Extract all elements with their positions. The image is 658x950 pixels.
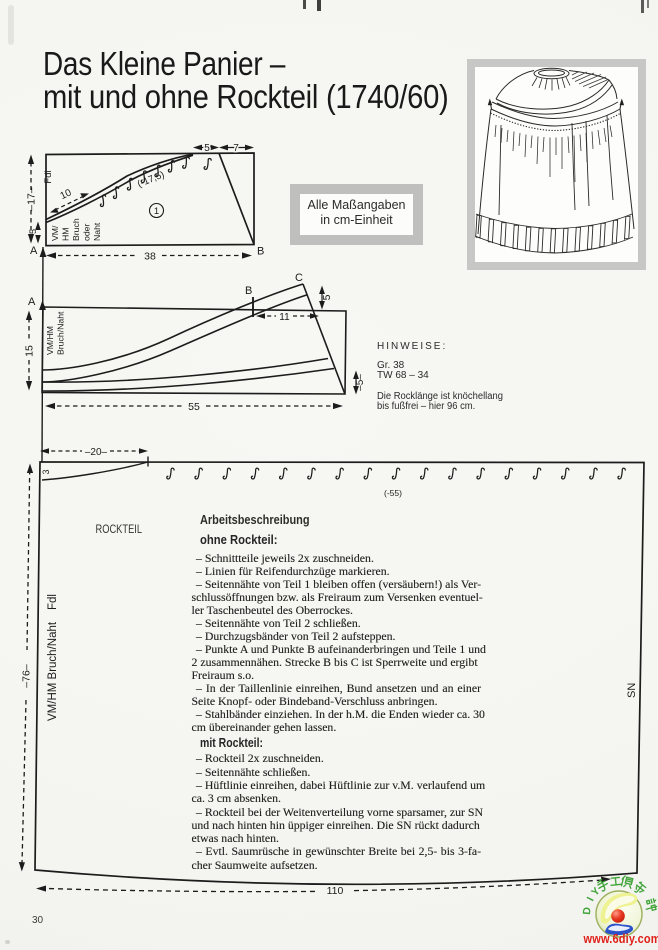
svg-text:HM: HM [61, 227, 71, 241]
svg-text:Bruch/Naht: Bruch/Naht [56, 311, 66, 355]
svg-text:Fdl: Fdl [43, 170, 54, 183]
svg-text:www.6diy.com: www.6diy.com [583, 931, 658, 946]
svg-text:VM/HM Bruch/Naht: VM/HM Bruch/Naht [47, 621, 59, 721]
svg-text:A: A [28, 296, 36, 308]
svg-text:5: 5 [204, 143, 210, 154]
svg-text:5: 5 [28, 229, 38, 234]
svg-text:–76–: –76– [20, 664, 32, 688]
svg-text:5: 5 [321, 294, 333, 300]
svg-text:–20–: –20– [85, 447, 108, 458]
svg-text:–5–: –5– [355, 374, 366, 391]
svg-text:D: D [581, 906, 594, 915]
svg-text:B: B [245, 285, 252, 297]
svg-text:(-55): (-55) [384, 488, 402, 498]
svg-text:110: 110 [327, 885, 344, 897]
svg-text:VM/: VM/ [50, 225, 60, 241]
svg-text:B: B [257, 246, 264, 258]
svg-text:oder: oder [82, 224, 92, 241]
svg-text:7: 7 [233, 143, 239, 154]
svg-text:C: C [295, 272, 303, 284]
svg-text:55: 55 [188, 401, 200, 413]
svg-text:–17–: –17– [25, 187, 37, 211]
svg-text:Naht: Naht [92, 222, 102, 241]
svg-text:VM/HM: VM/HM [45, 326, 55, 355]
svg-text:10: 10 [59, 187, 74, 202]
svg-text:Fdl: Fdl [47, 594, 59, 610]
svg-text:Bruch: Bruch [71, 218, 81, 241]
svg-text:30: 30 [32, 915, 44, 926]
svg-text:1: 1 [154, 206, 159, 217]
svg-text:38: 38 [144, 251, 156, 263]
svg-text:15: 15 [23, 345, 35, 357]
svg-text:SN: SN [626, 683, 638, 698]
svg-text:11: 11 [279, 312, 290, 323]
svg-text:A: A [30, 245, 38, 257]
svg-text:3: 3 [41, 469, 51, 474]
svg-text:(-17,5): (-17,5) [136, 169, 166, 190]
svg-text:ROCKTEIL: ROCKTEIL [96, 524, 143, 536]
